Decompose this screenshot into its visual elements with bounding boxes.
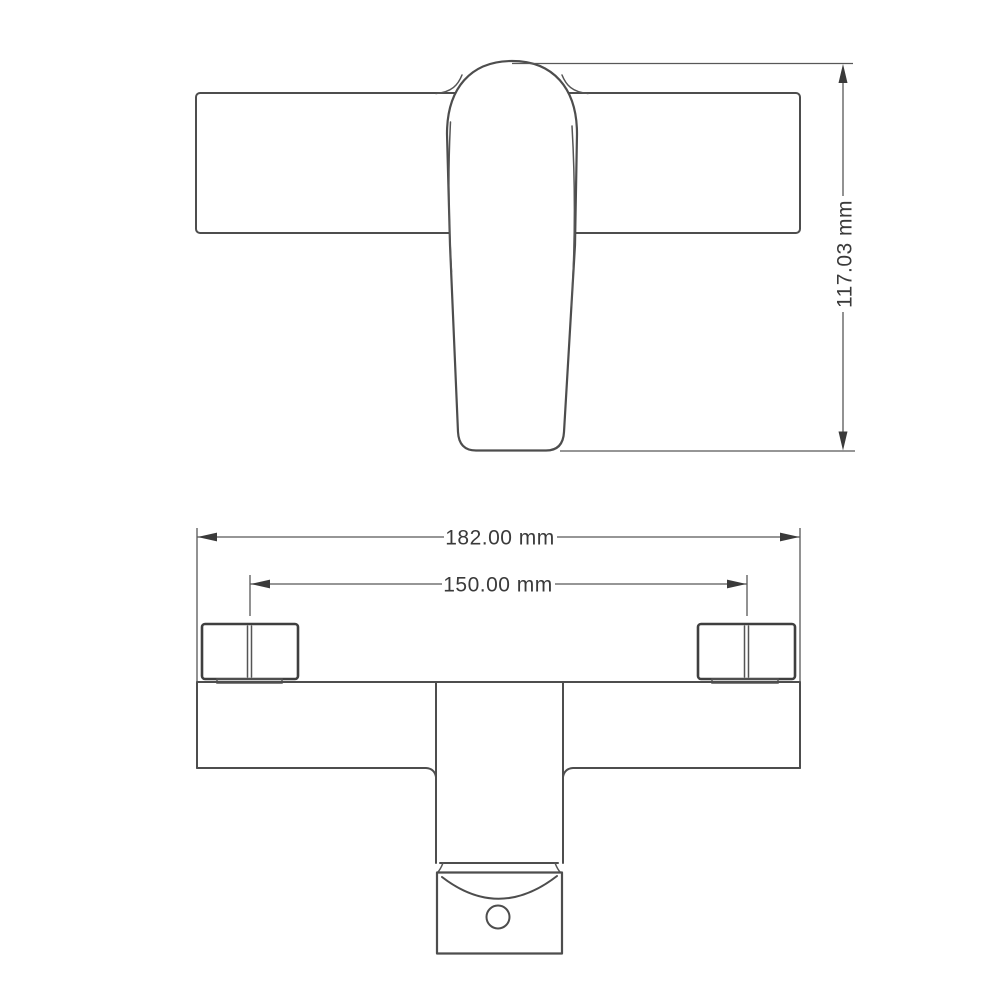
width-dim-label: 182.00 mm (445, 527, 555, 550)
width-dim-arrow-left (198, 533, 218, 542)
inlet-connector-right (698, 624, 795, 679)
column-outlet-junction-left (438, 863, 444, 873)
outlet-arc (442, 876, 557, 899)
spacing-dim-label: 150.00 mm (443, 574, 553, 597)
inlet-connector-right-divider (745, 626, 749, 677)
body-wing-bottom-right (563, 768, 800, 777)
inlet-connector-left-divider (248, 626, 252, 677)
outlet-screw-hole (487, 906, 510, 929)
inlet-connector-left (202, 624, 298, 679)
width-dim-arrow-right (780, 533, 800, 542)
technical-drawing: 117.03 mm 182.00 mm 150.00 mm (0, 0, 1000, 1000)
column-outlet-junction-right (555, 863, 561, 873)
drawing-canvas: 117.03 mm 182.00 mm 150.00 mm (0, 0, 1000, 1000)
spacing-dim-arrow-left (251, 580, 271, 589)
body-wing-bottom-left (197, 768, 436, 777)
height-dim-arrow-bottom (839, 432, 848, 451)
spacing-dim-arrow-right (727, 580, 747, 589)
side-view: 117.03 mm (196, 61, 857, 451)
lever-handle-outline (447, 61, 577, 451)
front-view: 182.00 mm 150.00 mm (197, 527, 800, 954)
height-dim-arrow-top (839, 64, 848, 83)
height-dim-label: 117.03 mm (834, 200, 857, 308)
